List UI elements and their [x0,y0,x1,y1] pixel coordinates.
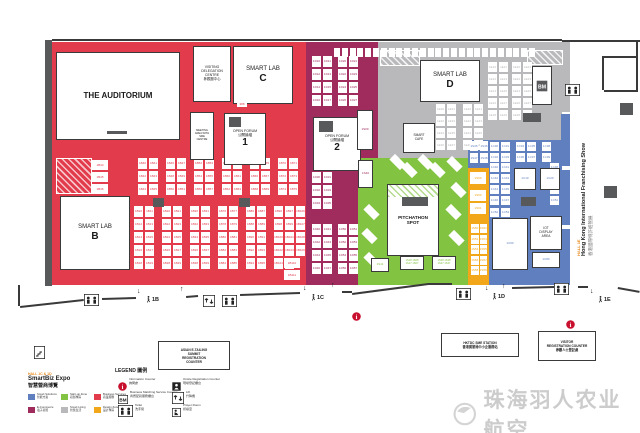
entrance-label: 1C [317,295,324,301]
booth-cell: 1D33 [323,185,332,196]
booth-cell: 1E30 [436,104,445,114]
booth-cell: 1B21 [173,206,182,217]
booth-cell: 1D56 [338,263,347,274]
legend-zone-item: Smart Solutions智能方案 [28,393,57,400]
booth-cell: 1C40 [490,163,499,172]
right-strip-segment [561,170,570,225]
svg-text:i: i [570,322,572,329]
booth-cell [467,48,473,57]
entrance-up-arrow: ↑ [180,286,184,293]
watermark-logo-icon [452,399,478,429]
booth-cell: 1S48 [480,153,488,163]
booth-cell: 1E44 [463,128,472,138]
counter-asian-etailing: ASIAN E-TAILINGSUMMITREGISTRATIONCOUNTER [158,341,230,370]
booth-cell: 1B37 [201,245,210,256]
booth-cell: 1E21 [523,62,532,72]
pillar [620,103,633,115]
toilet-icon [222,294,237,312]
booth-cell: 1C42 [490,174,499,183]
booth-cell: 1D24 [338,82,347,93]
booth-cell: 1E22 [512,74,521,84]
booth-cell [365,48,371,57]
booth-cell: 1B29 [173,258,182,269]
room-label: AREA [542,235,551,239]
booth-cell: 1B45 [149,184,158,195]
booth-cell: 1B97 [285,206,294,217]
wall-segment [240,292,300,296]
booth-cell: 1B25 [173,232,182,243]
room-label: 1S11 [377,263,384,266]
legend-zone-swatch [28,394,35,400]
room-bm-booth: BM [532,66,552,105]
legend-zone-item: Start-up Zone初創專區 [61,393,87,400]
booth-cell: 1D31 [323,172,332,183]
booth-cell: 1D40 [312,224,321,235]
booth-cell [381,48,387,57]
booth-cell: 1B103 [285,245,294,256]
legend-icon-label: Toilet洗手間 [135,404,144,411]
booth-cell: 1D44 [312,250,321,261]
booth-cell: 1B72 [278,171,287,182]
booth-cell [506,48,512,57]
legend-zone-item: E-Commerce電子商貿 [28,406,53,413]
booth-cell: 1D35 [323,198,332,209]
wall-segment [102,297,136,300]
room-smart-cafe: SMARTCAFE [403,123,435,153]
booth-cell: 1S59 [480,266,488,275]
booth-cell: 1E18 [488,110,497,120]
stage-block [402,197,428,206]
booth-cell [513,48,519,57]
room-letter: 2 [334,142,340,154]
booth-cell: 1E31 [447,104,456,114]
room-label: SMART LAB [433,72,467,79]
wall-segment [342,291,352,293]
room-smart-lab-b: SMART LABB [60,196,130,270]
booth-cell: 1C41 [501,163,510,172]
booth-cell [396,48,402,57]
booth-cell: 1E34 [436,128,445,138]
booth-cell: 1D47 [323,263,332,274]
booth-cell: 1B36 [190,245,199,256]
booth-cell: 1E11 [499,62,508,72]
booth-cell: 1S60 [470,190,486,201]
booth-cell: 1E28 [512,110,521,120]
booth-cell: 1B106 [296,206,305,217]
booth-cell: 1B102 [274,245,283,256]
booth-cell [357,48,363,57]
booth-cell: 1D11 [323,56,332,67]
booth-cell: 1B88 [246,219,255,230]
room-label: 1C10 [521,177,528,180]
booth-cell: 1E35 [447,128,456,138]
booth-cell: 1D16 [312,95,321,106]
booth-cell: 1B92 [246,245,255,256]
booth-cell: 1E32 [436,116,445,126]
legend-zone-swatch [61,407,68,413]
booth-cell: 1B56 [194,184,203,195]
booth-cell: 1B68 [250,184,259,195]
right-strip-segment [561,229,570,285]
booth-cell: 1B89 [257,219,266,230]
booth-cell: 1D21 [349,56,358,67]
room-visiting-delegation-centre: VISITINGDELEGATIONCENTRE參觀團中心 [193,46,231,102]
booth-cell: 1B26 [162,245,171,256]
wall-segment [512,286,554,289]
booth-cell [428,48,434,57]
booth-cell: 1C53 [501,208,510,217]
booth-cell: 1E17 [499,98,508,108]
wall-segment [20,299,84,308]
room-label: 1S17 1S07 [406,263,419,266]
booth-cell: 1C39 [542,153,551,162]
booth-cell: 1S50 [471,224,479,233]
booth-cell: 1E25 [523,86,532,96]
booth-cell: 1B34 [190,232,199,243]
legend-icon-label: Business Matching Service Counter商貿配對服務櫃… [130,391,178,398]
room-green-booth-3: 1S28 1S381S27 1S37 [432,256,456,270]
room-label: 1C80 [542,258,549,261]
booth-cell: 1D43 [323,237,332,248]
booth-cell: 1B50 [166,184,175,195]
booth-cell: 1D51 [349,224,358,235]
booth-cell: 1E13 [499,74,508,84]
legend-zone-item: Smart Living智慧生活 [61,406,86,413]
wall-segment [18,285,20,306]
booth-cell: 1E16 [488,98,497,108]
booth-cell: 1B42 [138,171,147,182]
toilet-icon [456,287,471,305]
svg-text:BM: BM [119,398,126,403]
entrance-down-arrow: ↓ [303,285,307,292]
booth-cell [373,48,379,57]
booth-cell: 1E23 [523,74,532,84]
wall-segment [602,56,604,90]
booth-cell: 1S53 [480,235,488,244]
booth-cell: 1B91 [257,232,266,243]
booth-cell: 1B70 [278,158,287,169]
room-green-booth-1: 1S11 [371,258,389,272]
booth-cell: 1B98 [274,219,283,230]
room-label: CAFE [415,138,424,142]
legend-icon-label: Information Counter詢問處 [129,378,156,385]
booth-cell: 1B96 [274,206,283,217]
booth-cell: 1B80 [218,232,227,243]
toilet-icon [84,293,99,311]
icon-legend-title: LEGEND 圖例 [115,367,147,374]
room-open-forum-1: OPEN FORUM公開論壇1 [224,113,266,165]
booth-cell: 1B46 [166,158,175,169]
booth-cell: 1C33 [501,153,510,162]
booth-cell: 1B81 [229,232,238,243]
booth-cell: 1E14 [488,86,497,96]
booth-cell: 1D50 [338,224,347,235]
booth-cell: 1B28 [162,258,171,269]
booth-cell: 1B24 [162,232,171,243]
booth-cell: 1B10 [134,206,143,217]
booth-cell [334,48,340,57]
booth-cell: 1C45 [501,185,510,194]
booth-cell: 1D41 [323,224,332,235]
booth-cell [350,48,356,57]
booth-cell: 1B75 [289,184,298,195]
booth-cell: 1S52 [471,235,479,244]
room-label: 參觀團中心 [204,78,221,82]
booth-cell: 1B20 [162,206,171,217]
booth-cell: 1B73 [289,171,298,182]
toilet-icon [554,282,569,300]
toilet-icon [565,83,580,101]
booth-cell: 1D52 [338,237,347,248]
booth-cell: 1E15 [499,86,508,96]
room-letter: C [259,73,266,85]
corridor-show-title-zh: 香港國際特許經營展 [588,88,594,256]
booth-cell: 1D17 [323,95,332,106]
booth-cell: 1B12 [134,219,143,230]
room-smart-lab-d: SMART LABD [420,60,480,102]
left-wall [45,40,52,286]
booth-cell: 1B46 [92,184,108,194]
booth-cell: 1B67 [261,171,270,182]
entrance-label: 1D [498,294,505,300]
room-letter: 1 [242,137,248,149]
booth-cell: 1B108 [296,232,305,243]
booth-cell: 1S61 [470,203,486,214]
booth-cell: 1B63 [233,184,242,195]
legend-icon-item: Toilet洗手間 [118,404,144,422]
legend-zone-label: E-Commerce電子商貿 [37,406,53,413]
entrance-1B: 1B [146,296,159,303]
booth-cell: 1B86 [246,206,255,217]
legend-zone-label: Start-up Zone初創專區 [70,393,87,400]
stairs-icon [34,346,45,364]
room-purple-booth-1s09: 1S09 [357,110,373,150]
booth-cell [389,48,395,57]
wall-segment [578,286,588,288]
booth-cell: 1D22 [338,69,347,80]
room-label: 1S27 1S37 [438,263,451,266]
counter-label: 參觀人士登記處 [556,348,578,352]
booth-cell: 1B61 [233,171,242,182]
booth-cell: 1E24 [512,86,521,96]
booth-cell: 1B74 [278,184,287,195]
wall-segment [618,287,640,293]
legend-icon-label: Onsite Registration Counter現場登記櫃台 [183,378,220,385]
booth-cell: 1B62 [222,184,231,195]
legend-zone-item: Design Zone設計專區 [94,406,119,413]
booth-cell: 1E43 [474,116,483,126]
entrance-down-arrow: ↓ [590,288,594,295]
counter-sme-station: HKTDC SME STATION香港貿發局中小企服務站 [441,333,519,357]
booth-cell: 1S51 [480,224,488,233]
booth-cell: 1B79 [229,219,238,230]
booth-cell: 1C31 [501,142,510,151]
booth-cell: 1D30 [312,172,321,183]
booth-cell: 1E45 [474,128,483,138]
booth-cell: 1C37 [527,153,536,162]
corridor-show-title: Hong Kong International Franchising Show [581,88,588,256]
booth-cell: 1B111 [284,270,300,280]
booth-cell: 1B33 [201,219,210,230]
booth-cell: 1D13 [323,69,332,80]
booth-cell: 1B77 [229,206,238,217]
booth-cell: 1C30 [490,142,499,151]
watermark-text: 珠海羽人农业航空 [484,384,640,433]
booth-cell: 1D20 [338,56,347,67]
room-label: SMART LAB [246,66,280,73]
booth-cell [342,48,348,57]
booth-cell: 1E20 [512,62,521,72]
entrance-1D: 1D [492,293,505,300]
booth-cell: 1B27 [173,245,182,256]
counter-visitor-registration: VISITORREGISTRATION COUNTER參觀人士登記處 [538,331,596,361]
booth-cell: 1B43 [149,171,158,182]
legend-zone-label: Design Zone設計專區 [103,406,119,413]
booth-cell: 1S54 [471,245,479,254]
booth-cell: 1S46 [480,141,488,151]
booth-cell: 1D55 [349,250,358,261]
legend-zone-swatch [28,407,35,413]
booth-cell: 1B32 [190,219,199,230]
booth-cell: 1B55 [205,171,214,182]
room-label: CENTRE [197,139,208,142]
room-label: 1S09 [361,128,368,131]
legend-zone-label: Smart Solutions智能方案 [37,393,57,400]
stage-block [319,121,333,132]
booth-cell [451,48,457,57]
svg-text:i: i [356,314,358,321]
legend-zone-swatch [61,394,68,400]
room-blue-booth-3: 1C80 [532,252,560,268]
booth-cell: 1B76 [218,206,227,217]
entrance-down-arrow: ↓ [485,285,489,292]
booth-cell: 1B71 [289,158,298,169]
booth-cell [482,48,488,57]
booth-cell: 1B60 [222,171,231,182]
booth-cell: 1E40 [463,104,472,114]
booth-cell: 1D32 [312,185,321,196]
wall-segment [52,39,562,41]
booth-cell: 1E27 [523,98,532,108]
booth-cell: 1B23 [173,219,182,230]
booth-cell: 1S55 [480,245,488,254]
booth-cell: 1D45 [323,250,332,261]
room-label: 1C60 [506,242,513,245]
lift-icon [203,294,215,312]
booth-cell: 1C44 [490,185,499,194]
booth-cell [529,48,535,57]
booth-cell: 1B82 [218,245,227,256]
entrance-1E: 1E [598,296,611,303]
booth-cell: 1B66 [250,171,259,182]
booth-cell: 1S47 [470,153,478,163]
booth-cell: 1B104 [274,258,283,269]
booth-cell [420,48,426,57]
booth-cell: 1C32 [490,153,499,162]
booth-cell [459,48,465,57]
booth-cell: 1E36 [436,140,445,150]
watermark: 珠海羽人农业航空 [452,384,640,433]
minor-label: 388 [237,102,247,107]
room-label: 1C20 [546,177,553,180]
booth-cell: 1B78 [218,219,227,230]
room-label: SPOT [407,220,420,225]
booth-cell: 1B109 [296,245,305,256]
toilet-icon [118,404,133,422]
booth-cell: 1B41 [149,158,158,169]
booth-cell: 1B16 [134,245,143,256]
pillar [604,186,617,198]
booth-cell: 1B22 [162,219,171,230]
booth-cell: 1C43 [501,174,510,183]
booth-cell: 1C46 [490,196,499,205]
prayer-icon [172,404,181,422]
booth-cell: 1D42 [312,237,321,248]
room-iot-display-area: IOTDISPLAYAREA [530,216,562,250]
booth-cell: 1D53 [349,237,358,248]
booth-cell: 1D26 [338,95,347,106]
booth-cell: 1B69 [261,184,270,195]
booth-cell [474,48,480,57]
information-icon: i [352,308,361,326]
booth-cell: 1B35 [201,232,210,243]
booth-cell: 1B83 [229,245,238,256]
booth-cell: 1E42 [463,116,472,126]
booth-cell: 1D15 [323,82,332,93]
pillar [153,198,164,207]
booth-cell: 1E12 [488,74,497,84]
booth-cell [412,48,418,57]
counter-label: COUNTER [186,360,202,364]
room-letter: D [446,79,453,91]
booth-cell: 1B110 [284,258,300,268]
booth-cell: 1B49 [177,171,186,182]
entrance-up-arrow: ↑ [502,283,506,290]
booth-cell: 1B47 [177,158,186,169]
room-label: 1S40 [362,172,369,175]
exhibition-floor-plan: HALL 1E Hong Kong International Franchis… [0,0,640,433]
booth-cell: 1D25 [349,82,358,93]
booth-cell: 1B19 [145,258,154,269]
wall-segment [428,283,452,285]
booth-cell: 1D12 [312,69,321,80]
booth-cell: 1B31 [201,206,210,217]
legend-zone-swatch [94,394,101,400]
room-open-forum-2: OPEN FORUM公開論壇2 [313,117,361,171]
booth-cell: 1B107 [296,219,305,230]
wall-segment [562,40,640,42]
bm-icon: BM [536,80,548,92]
booth-cell: 1B44 [138,184,147,195]
booth-cell: 1B11 [145,206,154,217]
booth-cell: 1S57 [480,256,488,265]
right-strip-segment [561,114,570,166]
booth-cell: 1S69 [470,172,486,184]
booth-cell: 1B51 [177,184,186,195]
booth-cell: 1B100 [274,232,283,243]
booth-cell: 1B90 [246,232,255,243]
pillar [523,113,541,122]
wall-segment [636,56,638,90]
room-hatch [388,185,438,197]
booth-cell: 1C36 [516,153,525,162]
booth-cell: 1B95 [257,258,266,269]
booth-cell: 1B85 [229,258,238,269]
booth-cell [404,48,410,57]
booth-cell: 1E33 [447,116,456,126]
booth-cell [521,48,527,57]
booth-cell: 1E19 [499,110,508,120]
